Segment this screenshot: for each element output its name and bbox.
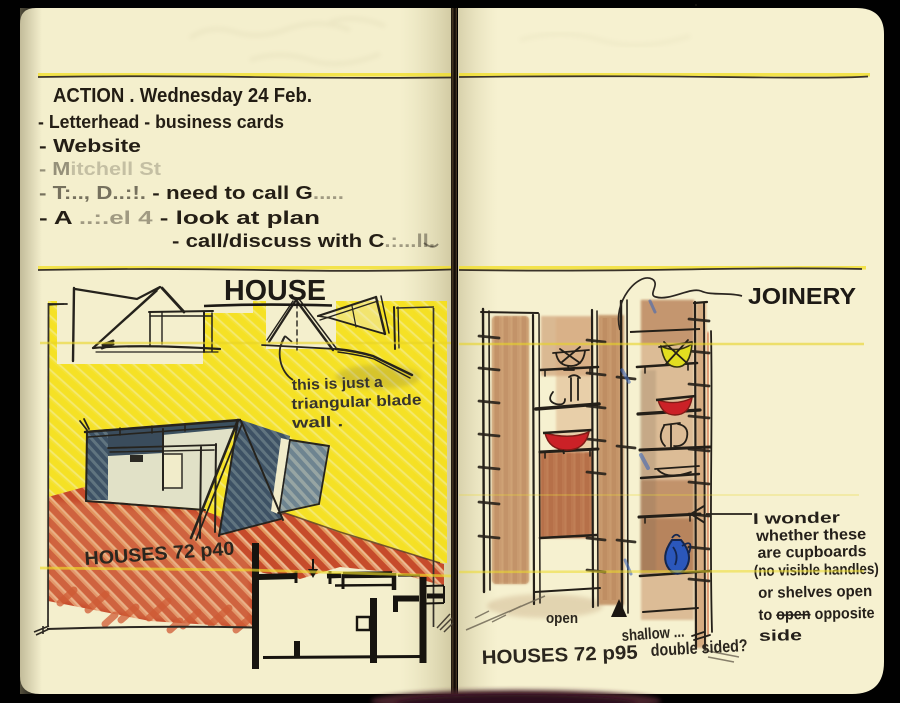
svg-text:- T:.., D..:!. - need to call: - T:.., D..:!. - need to call G..... — [39, 182, 344, 203]
svg-text:open: open — [546, 611, 578, 627]
svg-text:ACTION . Wednesday 24 Feb.: ACTION . Wednesday 24 Feb. — [53, 84, 312, 107]
svg-text:- Website: - Website — [39, 135, 141, 156]
svg-text:- call/discuss with C.:...ll.: - call/discuss with C.:...ll. — [172, 230, 435, 251]
svg-text:JOINERY: JOINERY — [748, 283, 856, 309]
svg-text:are cupboards: are cupboards — [757, 543, 866, 562]
svg-text:HOUSE: HOUSE — [224, 275, 326, 307]
svg-text:- Letterhead - business cards: - Letterhead - business cards — [38, 111, 284, 132]
svg-text:or shelves open: or shelves open — [758, 583, 872, 602]
svg-text:whether these: whether these — [755, 526, 867, 545]
svg-text:I wonder: I wonder — [753, 509, 840, 528]
svg-text:- A ..:.el 4 - look at plan: - A ..:.el 4 - look at plan — [39, 207, 320, 228]
svg-text:to open opposite: to open opposite — [758, 605, 875, 624]
svg-text:- Mitchell St: - Mitchell St — [39, 158, 161, 179]
svg-text:this is just a: this is just a — [292, 374, 384, 394]
svg-text:wall .: wall . — [290, 413, 343, 432]
svg-text:side: side — [759, 627, 803, 645]
